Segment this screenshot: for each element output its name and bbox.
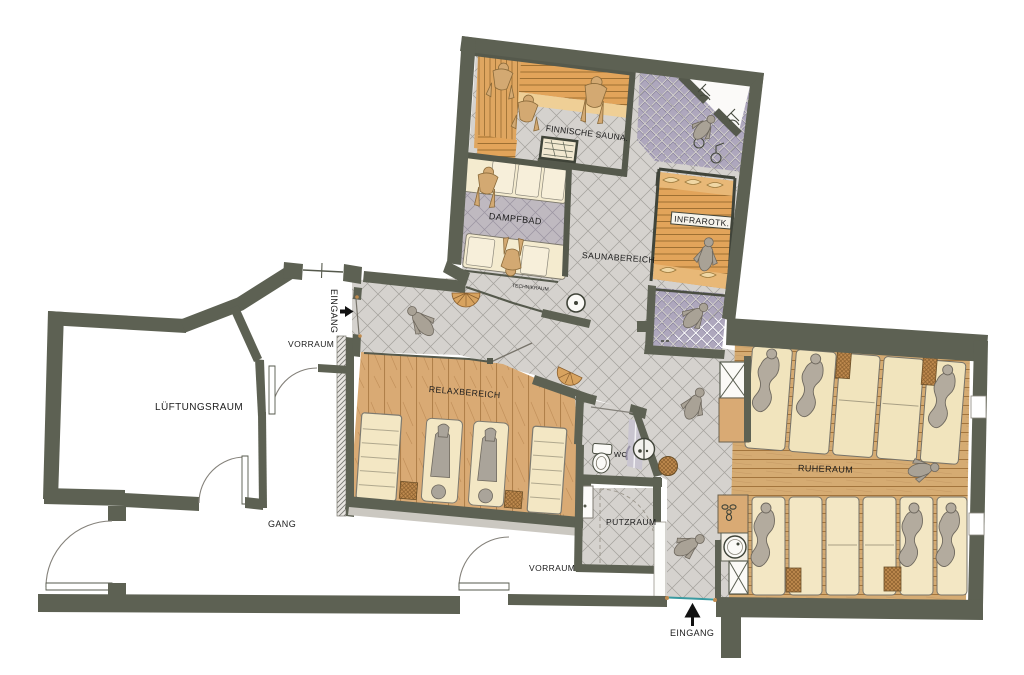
- svg-text:EINGANG: EINGANG: [670, 628, 714, 638]
- svg-text:GANG: GANG: [268, 519, 296, 529]
- svg-text:RUHERAUM: RUHERAUM: [798, 463, 854, 475]
- svg-text:VORRAUM: VORRAUM: [288, 339, 334, 349]
- svg-text:VORRAUM: VORRAUM: [529, 563, 575, 573]
- svg-text:LÜFTUNGSRAUM: LÜFTUNGSRAUM: [155, 401, 243, 413]
- svg-text:PUTZRAUM: PUTZRAUM: [606, 517, 656, 527]
- svg-text:WC: WC: [614, 450, 627, 459]
- svg-text:EINGANG: EINGANG: [329, 289, 339, 333]
